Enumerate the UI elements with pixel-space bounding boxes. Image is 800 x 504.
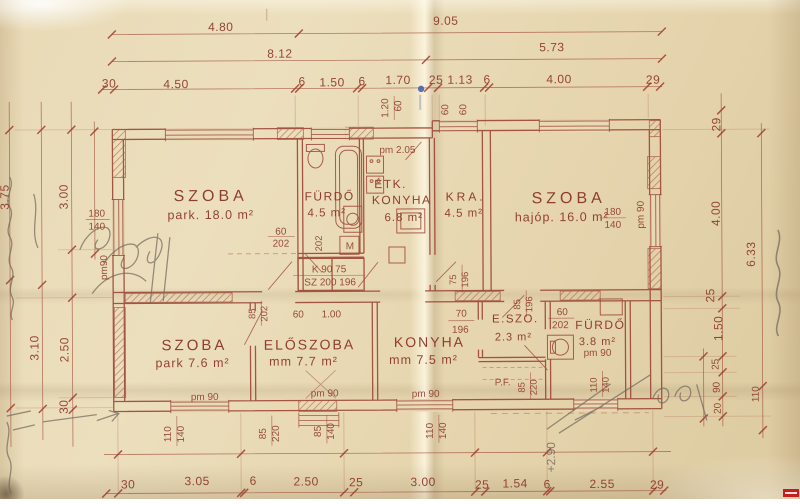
room-kra-name: KRA. <box>446 190 486 204</box>
annotation-pf: P.F. <box>495 377 511 388</box>
room-furdo2-pm: pm 90 <box>584 348 612 359</box>
dim-pair-a2: 140 <box>176 425 187 442</box>
spec-eszo-door-w: 85 <box>517 382 528 393</box>
dim-bottom-9: 2.55 <box>589 477 614 491</box>
watermark-badge <box>783 489 799 497</box>
room-szoba16-name: SZOBA <box>532 190 606 207</box>
spec-konyha-door-w: 70 <box>456 309 468 320</box>
dim-top1-1: 9.05 <box>433 14 458 28</box>
dim-top2-0: 8.12 <box>267 47 292 61</box>
room-kra-spec: 4.5 m² <box>444 208 483 220</box>
dim-bottom-0: 30 <box>121 477 135 491</box>
dim-small-60c: 60 <box>458 104 469 116</box>
spec-eloszoba-door-w: 85 <box>512 299 523 310</box>
dim-top3-9: 4.00 <box>546 72 571 86</box>
spec-szoba18-door-w: 60 <box>275 227 287 238</box>
room-furdo2-spec: 3.8 m² <box>579 336 616 348</box>
dim-pair-c2: 140 <box>326 423 337 440</box>
annotation-pm205: pm 2.05 <box>379 145 416 156</box>
spec-szoba76-door-w: 85 <box>247 308 258 319</box>
floor-plan-drawing: 4.80 9.05 8.12 5.73 30 4.50 6 1.50 6 1.7… <box>0 0 800 499</box>
dim-bottom-3: 2.50 <box>293 474 318 488</box>
dim-left-3: 2.50 <box>57 337 71 362</box>
dim-top3-4: 6 <box>358 74 365 88</box>
room-szoba76-name: SZOBA <box>161 337 227 354</box>
toilet-symbol <box>306 144 324 168</box>
room-furdo2-name: FÜRDŐ <box>575 317 625 332</box>
room-szoba16-spec: hajóp. 16.0 m² <box>515 210 609 224</box>
dim-top3-8: 6 <box>483 73 490 87</box>
spec-shaft-h: 140 <box>601 377 612 393</box>
room-konyha2-spec: mm 7.5 m² <box>389 353 458 367</box>
dim-right-lower-2: 20 <box>713 402 724 414</box>
spec-window-right-h: 140 <box>604 220 621 231</box>
room-eloszoba-name: ELŐSZOBA <box>264 336 356 352</box>
spec-furdo1-door: 202 <box>314 235 325 251</box>
dim-top2-1: 5.73 <box>539 40 564 54</box>
dim-left-4: 30 <box>57 400 71 414</box>
spec-hall-100: 1.00 <box>322 309 342 320</box>
dim-bottom-7: 1.54 <box>502 476 527 490</box>
dim-pair-a1: 110 <box>163 426 174 442</box>
room-szoba18-spec: park. 18.0 m² <box>167 208 254 222</box>
spec-shaft-w: 110 <box>589 377 600 392</box>
blue-pen-mark <box>418 86 425 110</box>
dim-bottom-8: 6 <box>544 477 551 491</box>
dim-left-2: 3.10 <box>27 335 41 360</box>
room-eloszoba-spec: mm 7.7 m² <box>269 354 338 368</box>
spec-hall-60: 60 <box>293 310 305 321</box>
dim-top3-7: 1.13 <box>447 73 472 87</box>
spec-konyha-door-h: 196 <box>452 325 469 336</box>
dim-right-lower-3: 110 <box>751 386 762 402</box>
dim-right-1: 4.00 <box>709 201 723 226</box>
dim-right-lower-1: 90 <box>712 381 723 393</box>
spec-eloszoba-door-h: 196 <box>524 296 535 312</box>
dim-right-lower-0: 25 <box>711 358 722 370</box>
dim-top3-6: 25 <box>429 73 443 87</box>
annotation-pm90-konyha: pm 90 <box>412 389 440 400</box>
dim-right-2: 6.33 <box>744 241 758 266</box>
dim-small-60a: 60 <box>393 100 404 112</box>
dim-top1-0: 4.80 <box>208 20 233 34</box>
dim-bottom-6: 25 <box>475 478 489 492</box>
room-furdo1-name: FÜRDŐ <box>305 188 355 203</box>
dim-pair-d1: 110 <box>425 422 436 438</box>
room-etk-line2: KONYHA <box>372 193 432 207</box>
room-eszo-name: E.SZO. <box>492 313 539 325</box>
annotation-pm90-szoba76: pm 90 <box>191 392 219 403</box>
spec-window-right-w: 180 <box>604 207 621 218</box>
dim-small-120: 1.20 <box>380 98 391 118</box>
annotation-m-appliance: M <box>346 241 354 252</box>
annotation-pm90-right: pm 90 <box>636 200 647 228</box>
dim-top3-10: 29 <box>646 73 660 87</box>
annotation-pm90-eloszoba: pm 90 <box>311 388 339 399</box>
dim-top3-3: 1.50 <box>319 75 344 89</box>
watermark-text-blur <box>785 492 797 494</box>
room-furdo1-spec: 4.5 m² <box>307 207 346 219</box>
door-swings <box>227 141 648 415</box>
spec-closet-1: K 90 75 <box>312 264 347 275</box>
dim-bottom-2: 6 <box>250 474 257 488</box>
dim-top3-5: 1.70 <box>385 73 410 87</box>
room-konyha2-name: KONYHA <box>394 334 465 350</box>
room-szoba18-name: SZOBA <box>174 188 248 205</box>
dim-small-60b: 60 <box>440 104 451 116</box>
dim-right-4: 1.50 <box>711 316 725 341</box>
spec-window-left-w: 180 <box>88 209 105 220</box>
annotation-pencil-note: +2.90 <box>544 442 558 473</box>
room-etk-spec: 6.8 m² <box>384 212 423 224</box>
dim-pair-b1: 85 <box>258 428 269 440</box>
dim-bottom-5: 3.00 <box>410 475 435 489</box>
spec-eszo-door-h: 220 <box>529 379 540 395</box>
dim-pair-b2: 220 <box>271 425 282 442</box>
dim-bottom-1: 3.05 <box>184 474 209 488</box>
spec-kra-door-w: 75 <box>448 274 459 285</box>
dim-top3-1: 4.50 <box>163 77 188 91</box>
spec-szoba18-door-h: 202 <box>273 239 290 250</box>
spec-window-left-h: 140 <box>88 222 105 233</box>
scanned-floor-plan: 4.80 9.05 8.12 5.73 30 4.50 6 1.50 6 1.7… <box>0 0 800 499</box>
dim-top3-0: 30 <box>102 76 116 90</box>
dim-left-0: 3.75 <box>0 184 12 209</box>
dim-right-0: 29 <box>709 117 723 131</box>
dim-pair-c1: 85 <box>313 425 324 437</box>
dim-right-3: 25 <box>703 288 717 302</box>
wc-symbol-bathroom2 <box>547 335 573 359</box>
room-etk-line1: ÉTK. <box>374 176 407 191</box>
dim-top3-2: 6 <box>298 74 305 88</box>
spec-kra-door-h: 196 <box>460 272 471 288</box>
spec-szoba76-door-h: 202 <box>259 306 270 322</box>
spec-furdo2-door-h: 202 <box>552 320 569 331</box>
spec-closet-2: SZ 200 196 <box>304 277 356 288</box>
dim-bottom-4: 25 <box>349 475 363 489</box>
dim-pair-d2: 140 <box>438 422 449 439</box>
room-szoba76-spec: park 7.6 m² <box>155 356 229 370</box>
dim-bottom-10: 29 <box>650 478 664 492</box>
annotation-pm90-left: pm90 <box>99 255 110 281</box>
spec-furdo2-door-w: 60 <box>557 307 569 318</box>
room-eszo-spec: 2.3 m² <box>495 331 532 343</box>
dim-left-1: 3.00 <box>57 184 71 209</box>
